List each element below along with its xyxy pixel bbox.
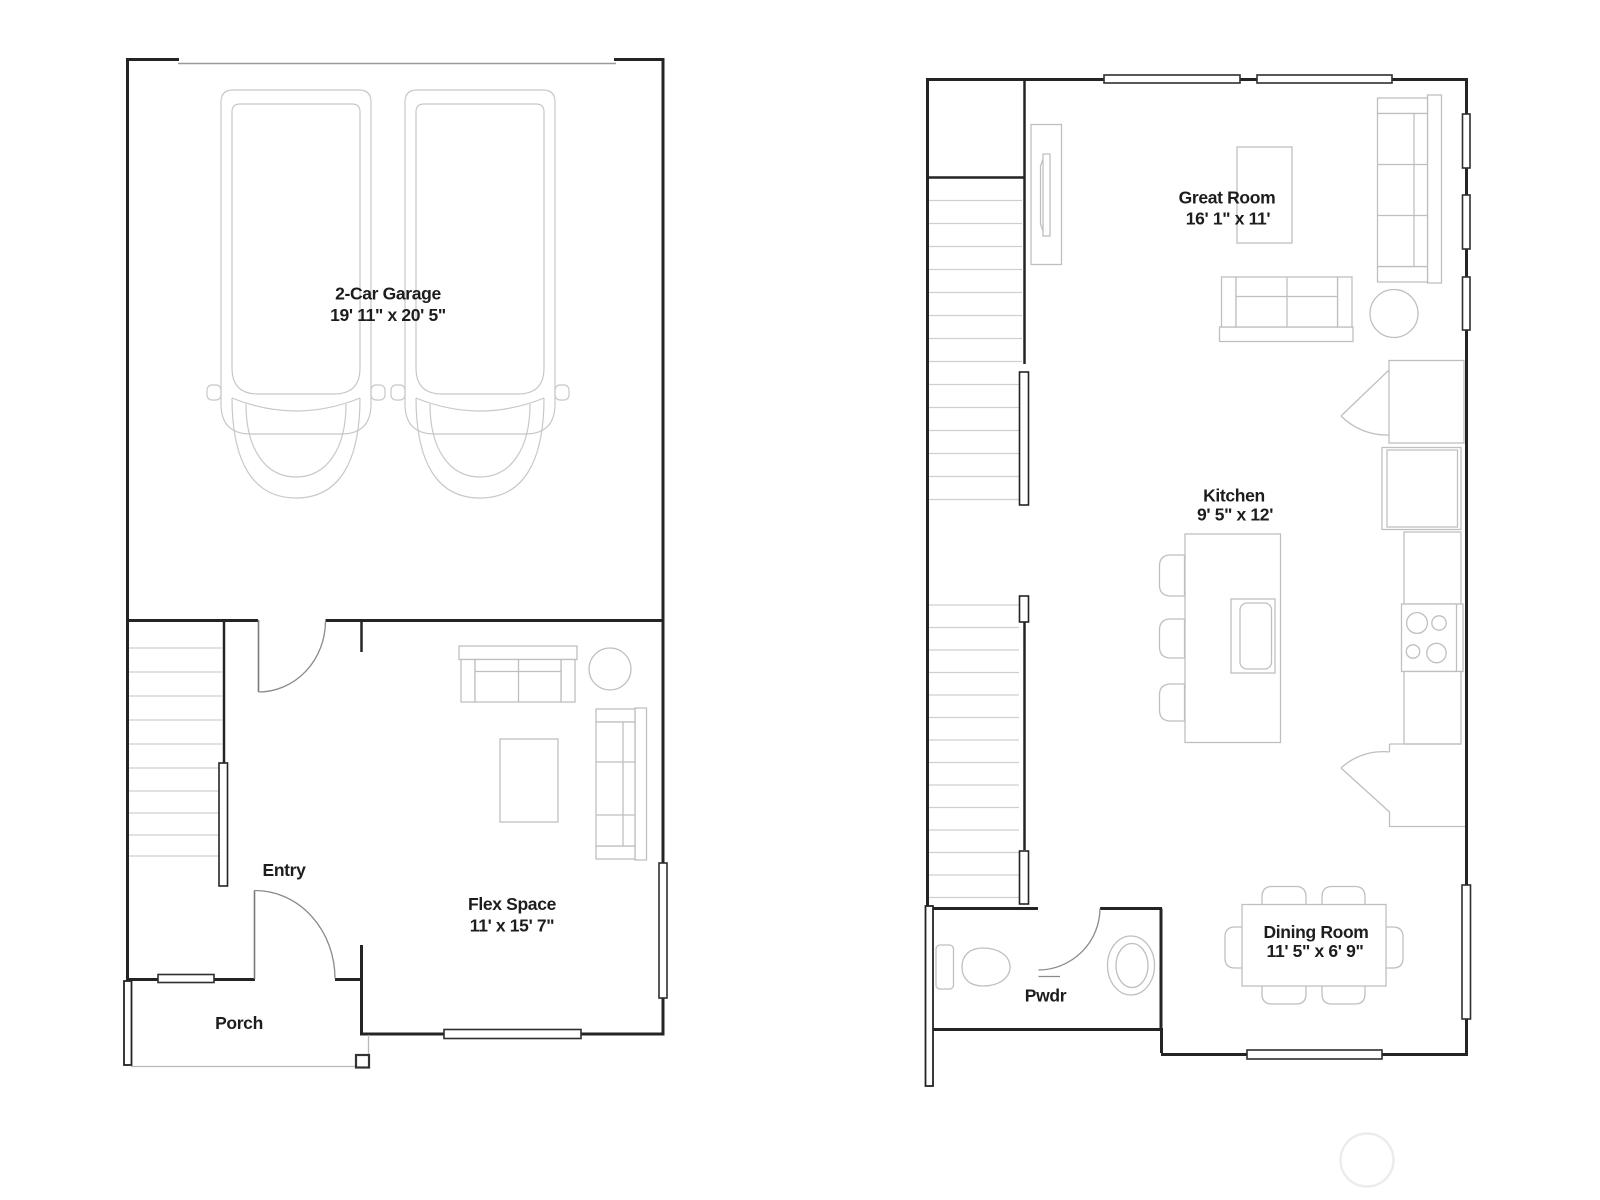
svg-text:Dining Room: Dining Room: [1263, 922, 1368, 942]
svg-text:19' 11" x 20' 5": 19' 11" x 20' 5": [330, 305, 446, 325]
svg-text:Pwdr: Pwdr: [1025, 986, 1067, 1006]
svg-text:Entry: Entry: [263, 860, 307, 880]
svg-text:2-Car Garage: 2-Car Garage: [335, 284, 441, 304]
svg-text:Kitchen: Kitchen: [1203, 486, 1265, 506]
svg-text:11' 5" x 6' 9": 11' 5" x 6' 9": [1267, 941, 1364, 961]
svg-text:16' 1" x 11': 16' 1" x 11': [1186, 209, 1271, 229]
svg-text:9' 5" x 12': 9' 5" x 12': [1197, 505, 1273, 525]
svg-text:Porch: Porch: [215, 1013, 263, 1033]
svg-text:Great Room: Great Room: [1179, 188, 1276, 208]
svg-text:11' x 15' 7": 11' x 15' 7": [470, 916, 554, 936]
svg-text:Flex Space: Flex Space: [468, 894, 557, 914]
